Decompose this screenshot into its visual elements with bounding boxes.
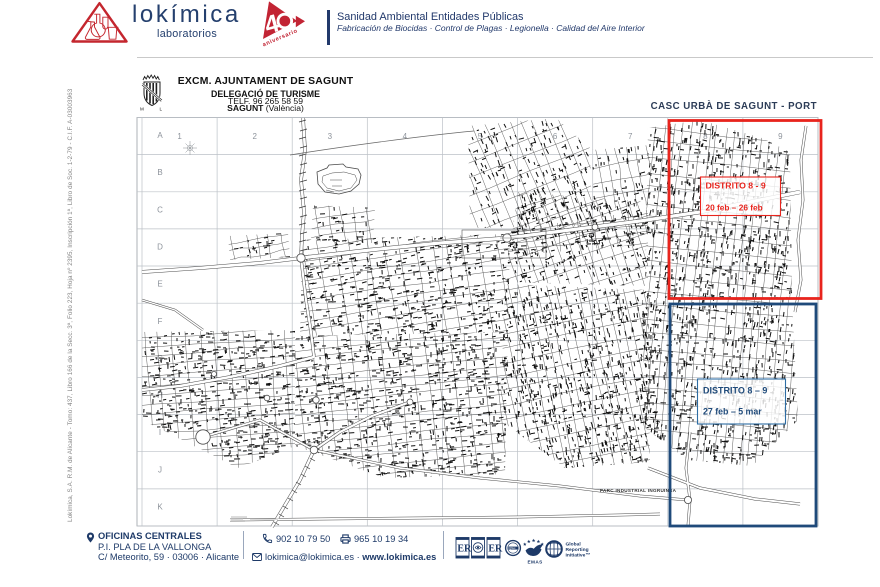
svg-text:8: 8	[703, 132, 708, 141]
svg-text:7: 7	[628, 132, 633, 141]
svg-text:C: C	[157, 205, 163, 214]
svg-text:Reporting: Reporting	[566, 547, 589, 553]
svg-text:3: 3	[328, 132, 333, 141]
svg-text:Global: Global	[566, 542, 582, 548]
svg-text:D: D	[157, 243, 163, 252]
svg-text:K: K	[157, 502, 163, 511]
svg-text:ER: ER	[457, 544, 472, 555]
svg-text:J: J	[158, 465, 162, 474]
svg-text:ER: ER	[488, 544, 503, 555]
svg-text:IQNet: IQNet	[508, 546, 515, 550]
svg-text:E: E	[157, 280, 162, 289]
svg-text:2: 2	[252, 132, 257, 141]
svg-text:20 feb – 26 feb: 20 feb – 26 feb	[706, 203, 763, 213]
svg-text:27 feb – 5 mar: 27 feb – 5 mar	[703, 407, 762, 417]
svg-text:4: 4	[403, 132, 408, 141]
svg-text:PARC INDUSTRIAL INGRUINSA: PARC INDUSTRIAL INGRUINSA	[600, 488, 677, 493]
svg-text:Initiative™: Initiative™	[566, 553, 591, 559]
svg-text:EMAS: EMAS	[528, 560, 543, 565]
svg-text:B: B	[157, 168, 162, 177]
svg-text:I: I	[159, 428, 161, 437]
svg-text:DISTRITO 8 – 9: DISTRITO 8 – 9	[703, 386, 767, 396]
svg-text:A: A	[157, 131, 163, 140]
svg-text:1: 1	[177, 132, 182, 141]
svg-text:9: 9	[778, 132, 783, 141]
svg-text:DISTRITO 8 - 9: DISTRITO 8 - 9	[706, 181, 766, 191]
svg-text:F: F	[158, 317, 163, 326]
